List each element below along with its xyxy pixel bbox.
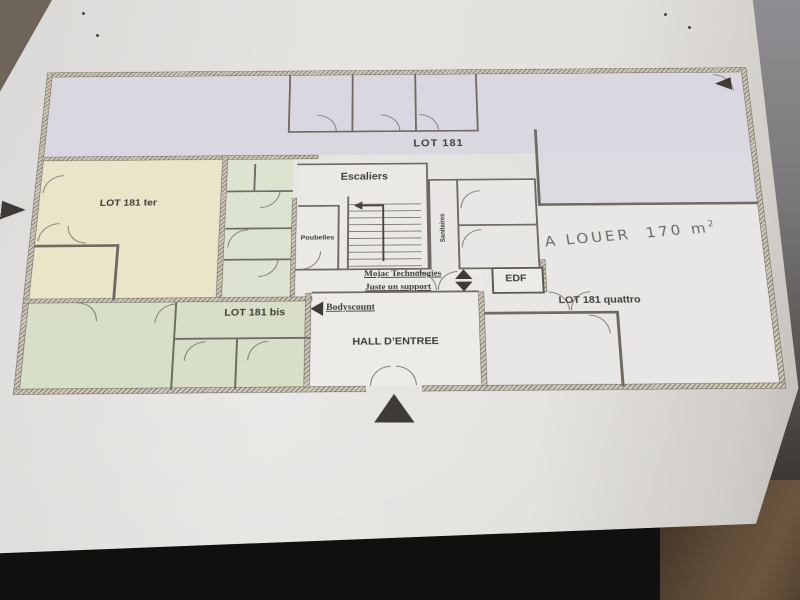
bodyscount-arrow-icon [310,301,323,315]
label-lot181-bis: LOT 181 bis [224,307,285,318]
label-lot181-quattro: LOT 181 quattro [558,294,641,305]
zone-lot181 [43,72,751,158]
wall-poubelles-top [298,205,338,207]
paper-speck [688,26,691,29]
top-right-arrow-icon [714,77,732,90]
label-juste: Juste un support [365,283,431,292]
stairs-arrow-line [382,205,384,262]
entrance-arrow-icon [374,394,414,423]
paper-speck [96,34,99,37]
stairs-arrow-line-h [361,205,384,207]
label-lot181: LOT 181 [413,137,464,149]
wall-partition [351,75,353,133]
floor-plan: LOT 181 LOT 181 ter LOT 181 bis LOT 181 … [14,68,786,394]
zone-lot181-right [538,152,758,203]
entrance-gap [366,385,422,392]
left-edge-arrow-icon [0,201,27,220]
corridor-down-arrow-icon [455,282,473,292]
paper-speck [664,13,667,16]
label-sanitaires: Sanitaires [440,214,447,243]
label-edf: EDF [505,273,527,284]
area-exponent: 2 [707,219,718,229]
stairs-direction-arrow-icon [354,201,363,210]
label-hall-entree: HALL D’ENTREE [352,336,439,348]
label-mojac: Mojac Technologies [364,269,441,278]
label-bodyscount: Bodyscount [326,302,375,312]
corridor-up-arrow-icon [455,269,473,279]
paper-speck [82,12,85,15]
label-poubelles: Poubelles [300,233,334,241]
label-escaliers: Escaliers [341,172,388,182]
label-lot181-ter: LOT 181 ter [99,198,157,209]
